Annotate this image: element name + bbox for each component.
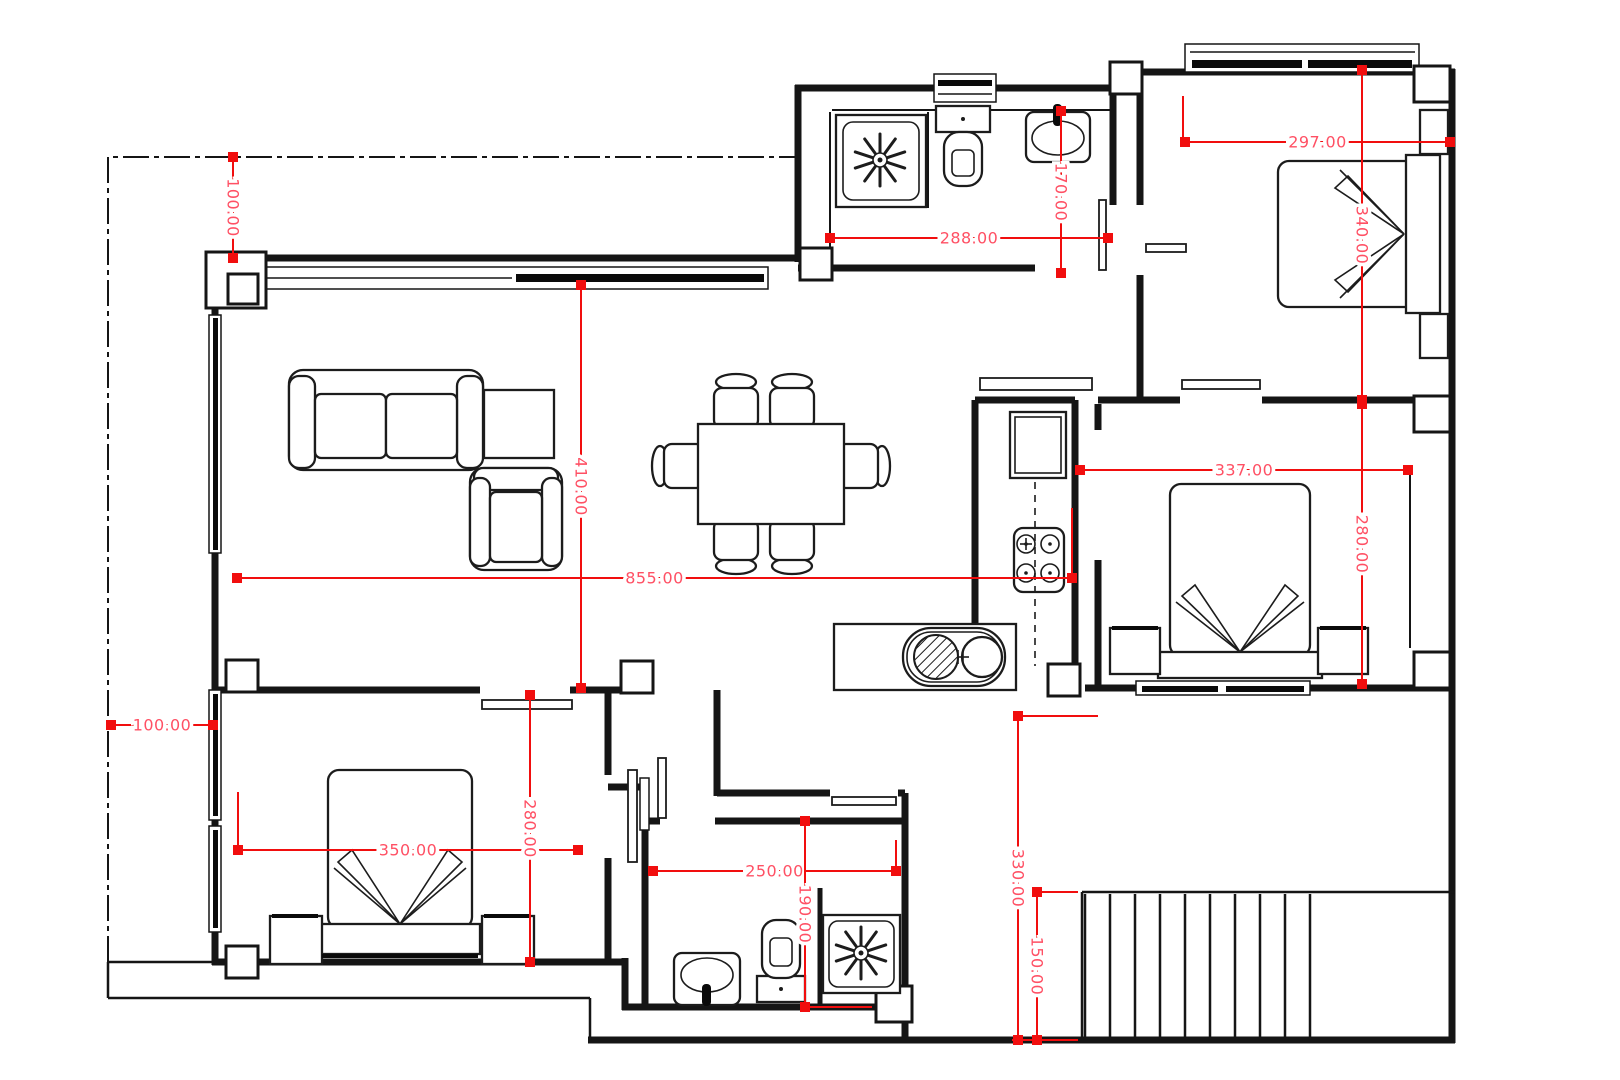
dimension-label-bath2-depth: 190.00 [796, 885, 815, 943]
door-leaf [1182, 380, 1260, 389]
dimension-endpoint-marker [576, 683, 586, 693]
dimension-endpoint-marker [1445, 137, 1455, 147]
dining-chair [770, 520, 814, 574]
dimension-endpoint-marker [648, 866, 658, 876]
dimension-endpoint-marker [228, 253, 238, 263]
dimension-endpoint-marker [525, 690, 535, 700]
dimension-endpoint-marker [800, 1002, 810, 1012]
refrigerator [1010, 412, 1066, 478]
shower-tray-icon [836, 115, 926, 207]
sofa [289, 370, 483, 470]
dimension-endpoint-marker [1013, 1035, 1023, 1045]
dimension-endpoint-marker [891, 866, 901, 876]
dimension-endpoint-marker [1067, 573, 1077, 583]
dimension-endpoint-marker [1357, 399, 1367, 409]
floor-plan-drawing: 100.00100.00288.00170.00297.00340.00337.… [0, 0, 1620, 1080]
dimension-endpoint-marker [106, 720, 116, 730]
headboard [320, 924, 480, 954]
basin-tap-icon [702, 984, 711, 1006]
stairs [1085, 894, 1310, 1038]
dimension-label-setback-top: 100.00 [224, 178, 243, 236]
dimension-label-bedroom2-width: 337.00 [1215, 461, 1273, 480]
window-bedroom1-top [1185, 44, 1419, 72]
dining-chair [652, 444, 704, 488]
nightstand [270, 916, 322, 964]
dimension-endpoint-marker [1103, 233, 1113, 243]
dimension-label-living-width: 855.00 [625, 569, 683, 588]
dimension-endpoint-marker [1013, 711, 1023, 721]
dimension-label-bedroom3-width: 350.00 [379, 841, 437, 860]
toilet-icon [936, 106, 990, 186]
nightstand [482, 916, 534, 964]
washbasin-icon [674, 953, 740, 1006]
living-room-furniture [289, 370, 562, 570]
bedroom-mid-right [1110, 484, 1368, 678]
dimension-endpoint-marker [1357, 679, 1367, 689]
dimension-endpoint-marker [1180, 137, 1190, 147]
dimension-endpoint-marker [1056, 106, 1066, 116]
window-bath2-left [640, 778, 649, 830]
bedroom-bottom-left [270, 770, 534, 964]
shower-tray-icon [823, 915, 900, 993]
dimension-endpoint-marker [228, 152, 238, 162]
door-leaf [628, 770, 637, 862]
dimension-endpoint-marker [1403, 465, 1413, 475]
window-bedroom2-bottom [1136, 681, 1310, 695]
dimension-endpoint-marker [1075, 465, 1085, 475]
bathroom-bottom [674, 915, 900, 1006]
dimension-endpoint-marker [825, 233, 835, 243]
window-bedroom3-left-upper [209, 690, 221, 820]
dimension-label-bedroom2-depth: 280.00 [1353, 515, 1372, 573]
nightstand [1110, 628, 1160, 674]
dimension-label-bath1-depth: 170.00 [1052, 163, 1071, 221]
door-leaf [482, 700, 572, 709]
dimension-endpoint-marker [1357, 65, 1367, 75]
door-leaf [832, 797, 896, 805]
dimension-label-bedroom3-depth: 280.00 [521, 799, 540, 857]
dimension-endpoint-marker [232, 573, 242, 583]
headboard [1158, 652, 1322, 678]
dining-chair [838, 444, 890, 488]
bed [1170, 484, 1310, 656]
headboard [1406, 155, 1440, 313]
coffee-table [484, 390, 554, 458]
dimension-endpoint-marker [573, 845, 583, 855]
dimension-label-bath1-width: 288.00 [940, 229, 998, 248]
serving-counter [980, 378, 1092, 390]
dimension-endpoint-marker [233, 845, 243, 855]
nightstand [1420, 314, 1448, 358]
dimension-endpoint-marker [525, 957, 535, 967]
armchair [470, 468, 562, 570]
dining-chair [714, 520, 758, 574]
dimension-label-terrace-depth: 330.00 [1009, 849, 1028, 907]
door-leaf [1146, 244, 1186, 252]
kitchen-sink [903, 628, 1005, 686]
dimension-label-setback-left: 100.00 [133, 716, 191, 735]
dimension-endpoint-marker [1032, 1035, 1042, 1045]
dining-chair [770, 374, 814, 428]
window-bath1 [934, 74, 996, 102]
dimension-endpoint-marker [208, 720, 218, 730]
window-living-left [209, 315, 221, 553]
dimension-endpoint-marker [1032, 887, 1042, 897]
floor-plan-canvas: 100.00100.00288.00170.00297.00340.00337.… [0, 0, 1620, 1080]
stove [1014, 528, 1064, 592]
dimension-label-bath2-width: 250.00 [745, 862, 803, 881]
dimension-endpoint-marker [576, 280, 586, 290]
dining-table [698, 424, 844, 524]
dining-chair [714, 374, 758, 428]
dining-set [652, 374, 890, 574]
window-bedroom3-left-lower [209, 826, 221, 932]
nightstand [1420, 110, 1448, 154]
dimension-endpoint-marker [1056, 268, 1066, 278]
dimension-label-living-depth: 410.00 [572, 457, 591, 515]
nightstand [1318, 628, 1368, 674]
door-leaf [658, 758, 666, 818]
kitchen [834, 378, 1092, 690]
dimension-endpoint-marker [800, 816, 810, 826]
dimension-label-stairs-depth: 150.00 [1028, 937, 1047, 995]
dimension-label-bedroom1-width: 297.00 [1288, 133, 1346, 152]
dimension-label-bedroom1-depth: 340.00 [1353, 206, 1372, 264]
window-living-top [256, 267, 768, 289]
